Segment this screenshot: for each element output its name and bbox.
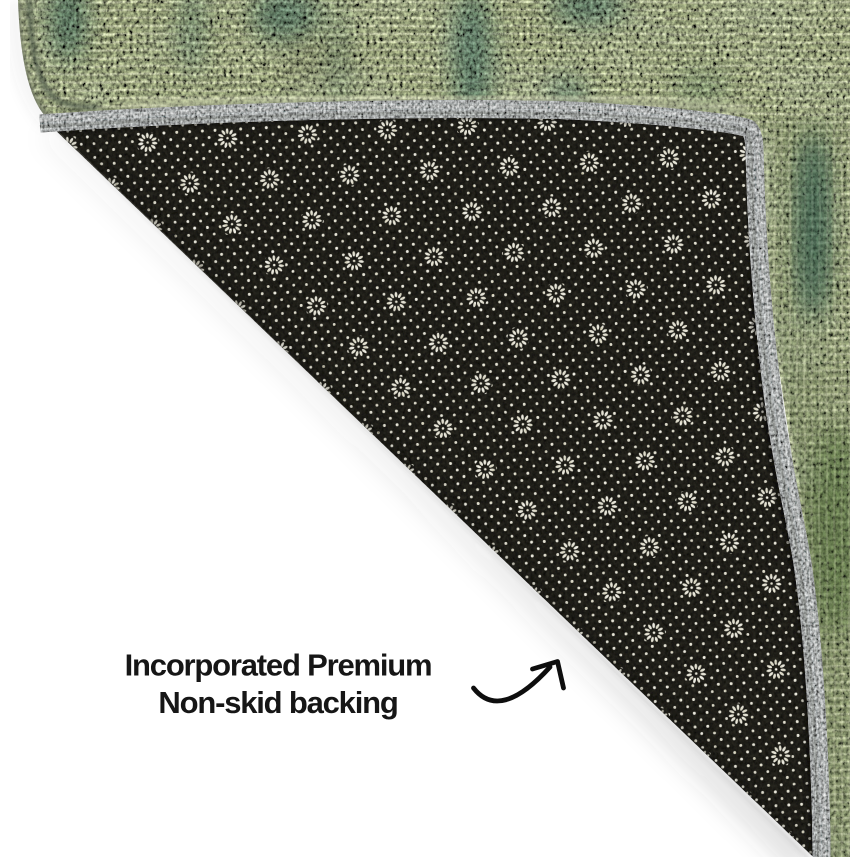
svg-text:Incorporated Premium: Incorporated Premium: [125, 648, 432, 683]
svg-text:Non-skid backing: Non-skid backing: [158, 685, 397, 720]
